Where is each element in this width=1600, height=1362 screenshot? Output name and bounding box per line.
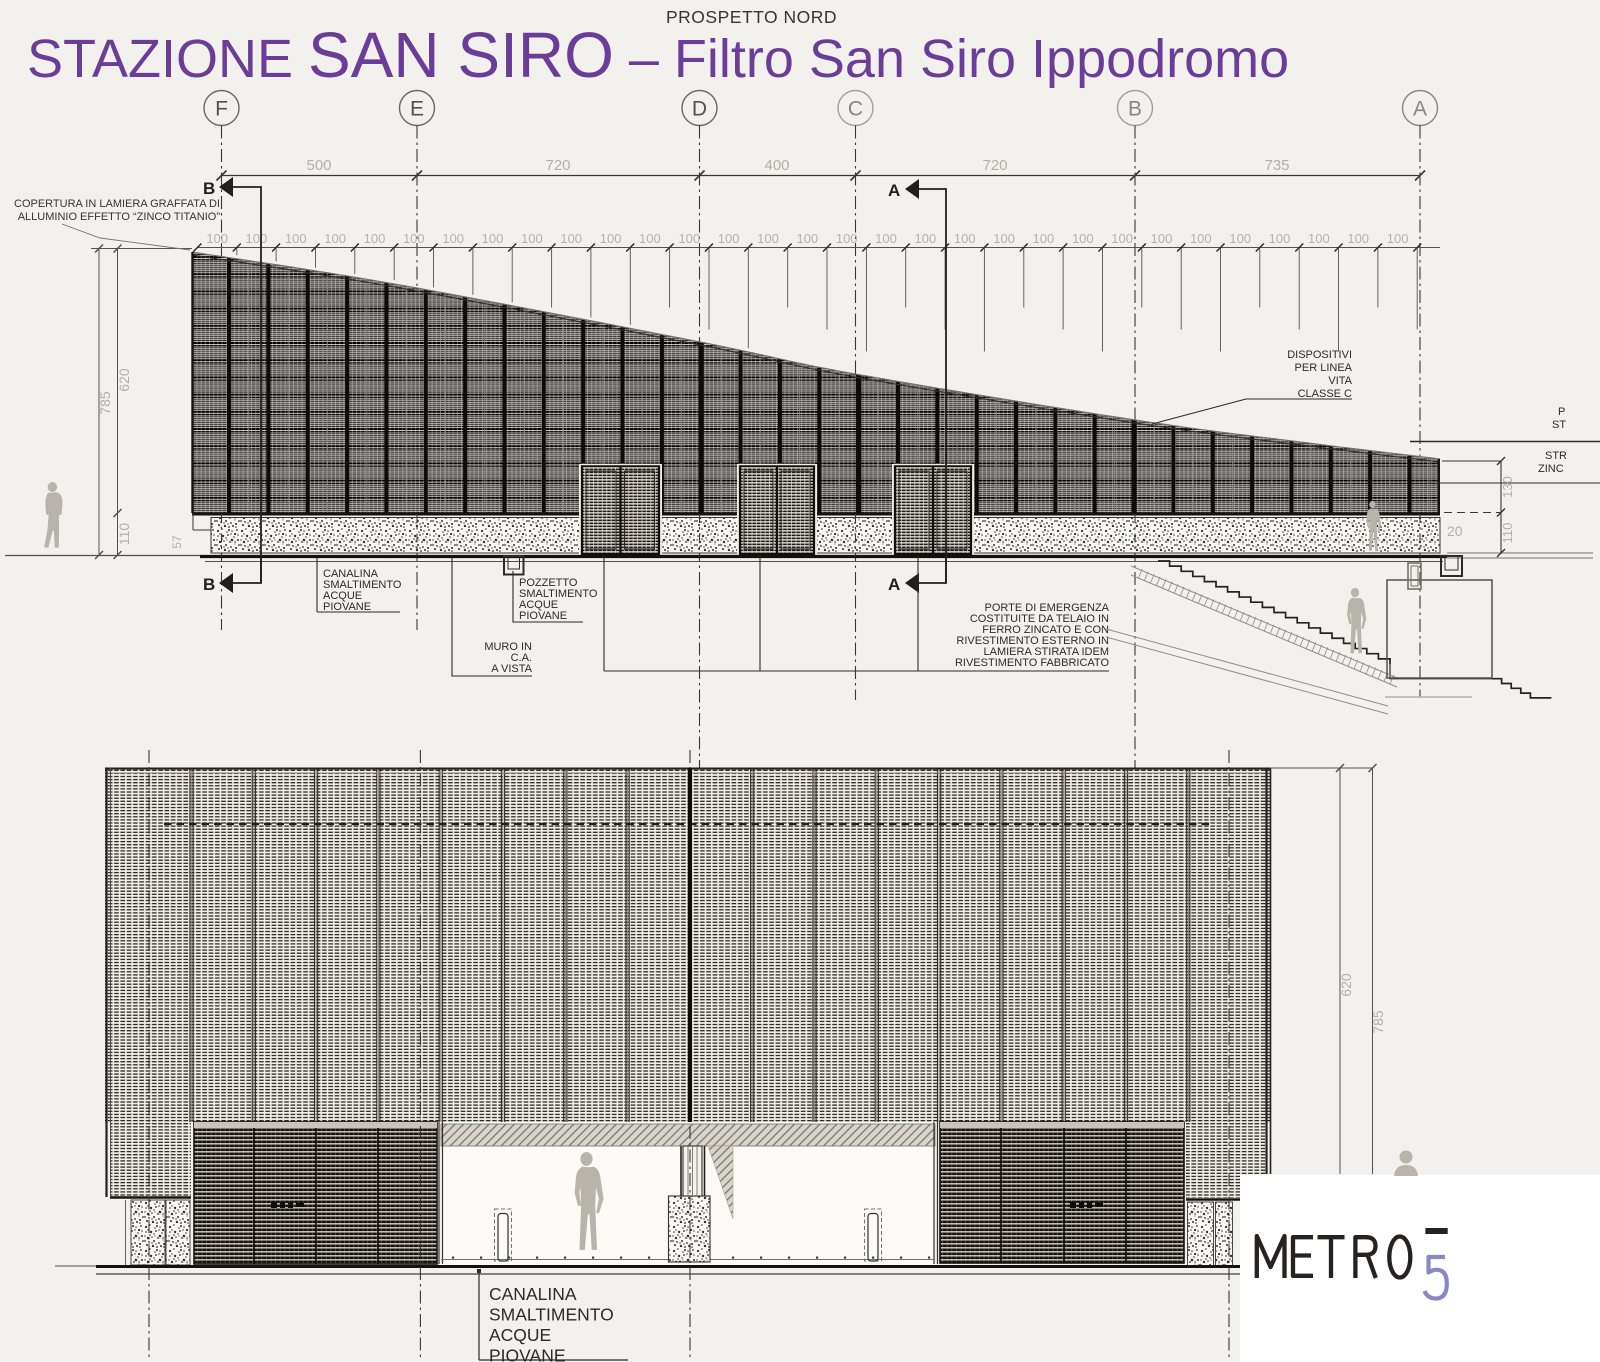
svg-text:100: 100 xyxy=(954,231,976,246)
svg-text:100: 100 xyxy=(757,231,779,246)
svg-text:C: C xyxy=(848,98,863,121)
svg-text:P: P xyxy=(1558,406,1565,418)
svg-text:DISPOSITIVI: DISPOSITIVI xyxy=(1287,349,1352,361)
svg-text:ALLUMINIO EFFETTO “ZINCO TITAN: ALLUMINIO EFFETTO “ZINCO TITANIO” xyxy=(18,211,221,223)
svg-text:100: 100 xyxy=(364,231,386,246)
svg-text:100: 100 xyxy=(1347,231,1369,246)
svg-text:STR: STR xyxy=(1545,450,1567,462)
svg-text:D: D xyxy=(692,98,707,121)
svg-text:100: 100 xyxy=(718,231,740,246)
svg-text:785: 785 xyxy=(1370,1010,1386,1034)
svg-text:100: 100 xyxy=(1033,231,1055,246)
svg-text:57: 57 xyxy=(170,535,184,549)
svg-text:PROSPETTO NORD: PROSPETTO NORD xyxy=(666,7,837,27)
svg-text:SMALTIMENTO: SMALTIMENTO xyxy=(489,1305,614,1325)
svg-text:400: 400 xyxy=(764,157,789,174)
svg-text:500: 500 xyxy=(306,157,331,174)
svg-text:PIOVANE: PIOVANE xyxy=(323,601,371,613)
svg-text:A: A xyxy=(888,575,900,594)
svg-text:100: 100 xyxy=(246,231,268,246)
svg-text:620: 620 xyxy=(1338,973,1354,997)
svg-text:785: 785 xyxy=(97,391,113,415)
svg-text:100: 100 xyxy=(600,231,622,246)
svg-text:100: 100 xyxy=(1072,231,1094,246)
svg-text:100: 100 xyxy=(915,231,937,246)
svg-text:100: 100 xyxy=(521,231,543,246)
svg-text:A VISTA: A VISTA xyxy=(491,663,532,675)
svg-text:100: 100 xyxy=(836,231,858,246)
svg-text:100: 100 xyxy=(560,231,582,246)
svg-text:A: A xyxy=(1413,98,1427,121)
svg-text:E: E xyxy=(410,98,424,121)
svg-text:100: 100 xyxy=(1308,231,1330,246)
svg-text:ZINC: ZINC xyxy=(1538,463,1564,475)
svg-text:620: 620 xyxy=(116,368,132,392)
svg-text:110: 110 xyxy=(116,523,132,546)
svg-text:100: 100 xyxy=(403,231,425,246)
svg-text:ACQUE: ACQUE xyxy=(489,1325,551,1345)
svg-text:100: 100 xyxy=(678,231,700,246)
svg-text:B: B xyxy=(203,575,215,594)
svg-text:100: 100 xyxy=(285,231,307,246)
svg-text:COPERTURA IN LAMIERA GRAFFA: COPERTURA IN LAMIERA GRAFFATA DI xyxy=(14,198,220,210)
svg-text:100: 100 xyxy=(442,231,464,246)
svg-text:B: B xyxy=(203,179,215,198)
svg-text:100: 100 xyxy=(875,231,897,246)
svg-text:110: 110 xyxy=(1500,523,1515,544)
svg-text:735: 735 xyxy=(1264,157,1289,174)
svg-text:RIVESTIMENTO FABBRICATO: RIVESTIMENTO FABBRICATO xyxy=(955,657,1109,669)
svg-text:100: 100 xyxy=(1190,231,1212,246)
svg-text:100: 100 xyxy=(482,231,504,246)
svg-text:VITA: VITA xyxy=(1328,375,1352,387)
svg-text:PER LINEA: PER LINEA xyxy=(1295,362,1353,374)
svg-text:CLASSE C: CLASSE C xyxy=(1298,388,1352,400)
svg-text:100: 100 xyxy=(1229,231,1251,246)
svg-text:100: 100 xyxy=(206,231,228,246)
svg-text:F: F xyxy=(215,98,228,121)
svg-text:20: 20 xyxy=(1447,523,1463,539)
svg-text:130: 130 xyxy=(1500,476,1515,498)
svg-text:100: 100 xyxy=(1151,231,1173,246)
svg-text:100: 100 xyxy=(993,231,1015,246)
svg-text:100: 100 xyxy=(1387,231,1409,246)
svg-text:720: 720 xyxy=(982,157,1007,174)
svg-text:PIOVANE: PIOVANE xyxy=(519,610,567,622)
svg-text:ST: ST xyxy=(1552,419,1566,431)
svg-text:720: 720 xyxy=(545,157,570,174)
svg-text:100: 100 xyxy=(796,231,818,246)
svg-text:CANALINA: CANALINA xyxy=(489,1284,577,1304)
svg-text:100: 100 xyxy=(639,231,661,246)
svg-text:A: A xyxy=(888,181,900,200)
svg-text:100: 100 xyxy=(1269,231,1291,246)
svg-text:STAZIONE SAN SIRO – Filtro San: STAZIONE SAN SIRO – Filtro San Siro Ippo… xyxy=(27,19,1289,91)
svg-text:100: 100 xyxy=(324,231,346,246)
svg-text:B: B xyxy=(1128,98,1142,121)
svg-text:100: 100 xyxy=(1111,231,1133,246)
